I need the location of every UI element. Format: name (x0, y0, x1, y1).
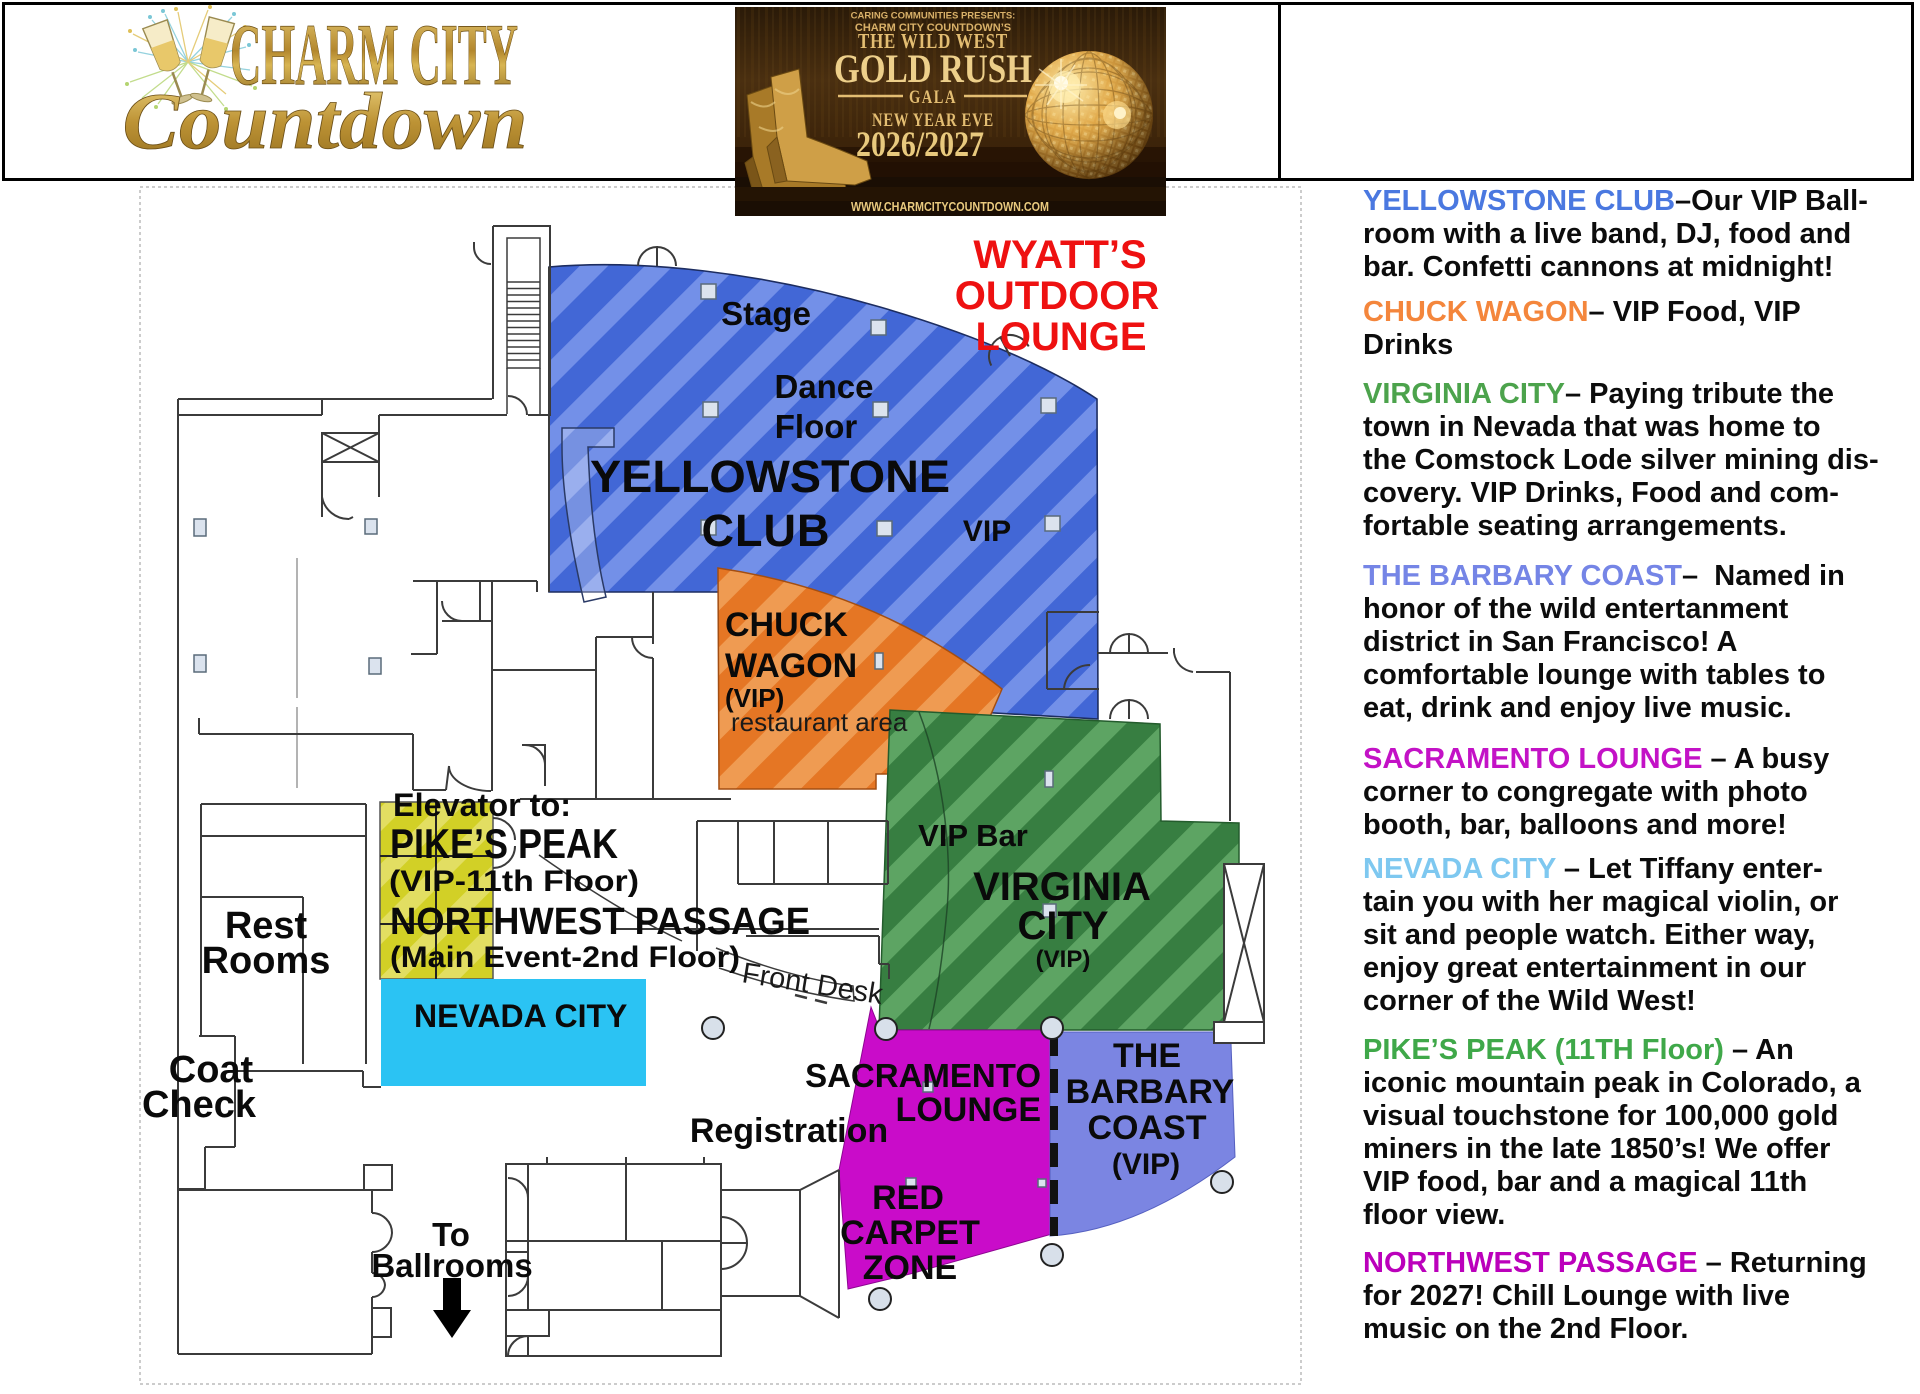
svg-text:(VIP): (VIP) (1112, 1148, 1180, 1181)
svg-text:(Main Event-2nd Floor): (Main Event-2nd Floor) (390, 941, 740, 974)
svg-text:(VIP-11th Floor): (VIP-11th Floor) (389, 865, 639, 898)
svg-text:WWW.CHARMCITYCOUNTDOWN.COM: WWW.CHARMCITYCOUNTDOWN.COM (851, 199, 1049, 214)
svg-text:2026/2027: 2026/2027 (856, 124, 984, 164)
svg-text:CITY: CITY (1017, 904, 1108, 948)
svg-text:NORTHWEST PASSAGE: NORTHWEST PASSAGE (390, 901, 810, 943)
svg-text:LOUNGE: LOUNGE (896, 1091, 1041, 1129)
svg-text:CHUCK: CHUCK (725, 606, 848, 644)
svg-text:Ballrooms: Ballrooms (371, 1247, 532, 1284)
svg-text:GOLD RUSH: GOLD RUSH (834, 46, 1032, 91)
svg-text:COAST: COAST (1088, 1109, 1207, 1147)
svg-text:VIP: VIP (963, 515, 1011, 548)
svg-text:RED: RED (872, 1179, 944, 1217)
svg-text:Rooms: Rooms (202, 940, 331, 982)
svg-text:GALA: GALA (909, 87, 957, 108)
svg-text:Elevator to:: Elevator to: (393, 787, 571, 823)
svg-text:OUTDOOR: OUTDOOR (955, 274, 1160, 318)
svg-text:Registration: Registration (690, 1112, 888, 1150)
svg-text:ZONE: ZONE (863, 1249, 957, 1287)
svg-text:Check: Check (142, 1084, 257, 1126)
svg-text:CARPET: CARPET (840, 1214, 980, 1252)
svg-text:BARBARY: BARBARY (1066, 1073, 1235, 1111)
svg-text:WYATT’S: WYATT’S (973, 233, 1146, 277)
svg-text:SACRAMENTO: SACRAMENTO (805, 1057, 1041, 1094)
svg-text:Dance: Dance (774, 368, 873, 405)
svg-text:CLUB: CLUB (702, 505, 831, 556)
svg-text:CARING COMMUNITIES PRESENTS:: CARING COMMUNITIES PRESENTS: (851, 11, 1016, 22)
svg-text:THE: THE (1113, 1037, 1181, 1075)
svg-text:restaurant area: restaurant area (731, 707, 908, 737)
svg-text:LOUNGE: LOUNGE (975, 315, 1146, 359)
svg-text:(VIP): (VIP) (1036, 946, 1091, 973)
svg-text:PIKE’S PEAK: PIKE’S PEAK (390, 820, 618, 867)
svg-text:NEVADA CITY: NEVADA CITY (414, 998, 627, 1034)
svg-text:VIRGINIA: VIRGINIA (973, 865, 1151, 909)
svg-text:Stage: Stage (721, 295, 811, 332)
svg-text:Front Desk: Front Desk (740, 957, 886, 1011)
svg-text:Countdown: Countdown (123, 78, 528, 166)
svg-text:Floor: Floor (775, 408, 858, 445)
svg-text:WAGON: WAGON (725, 647, 857, 685)
svg-text:VIP Bar: VIP Bar (918, 818, 1028, 853)
svg-text:YELLOWSTONE: YELLOWSTONE (590, 451, 950, 502)
